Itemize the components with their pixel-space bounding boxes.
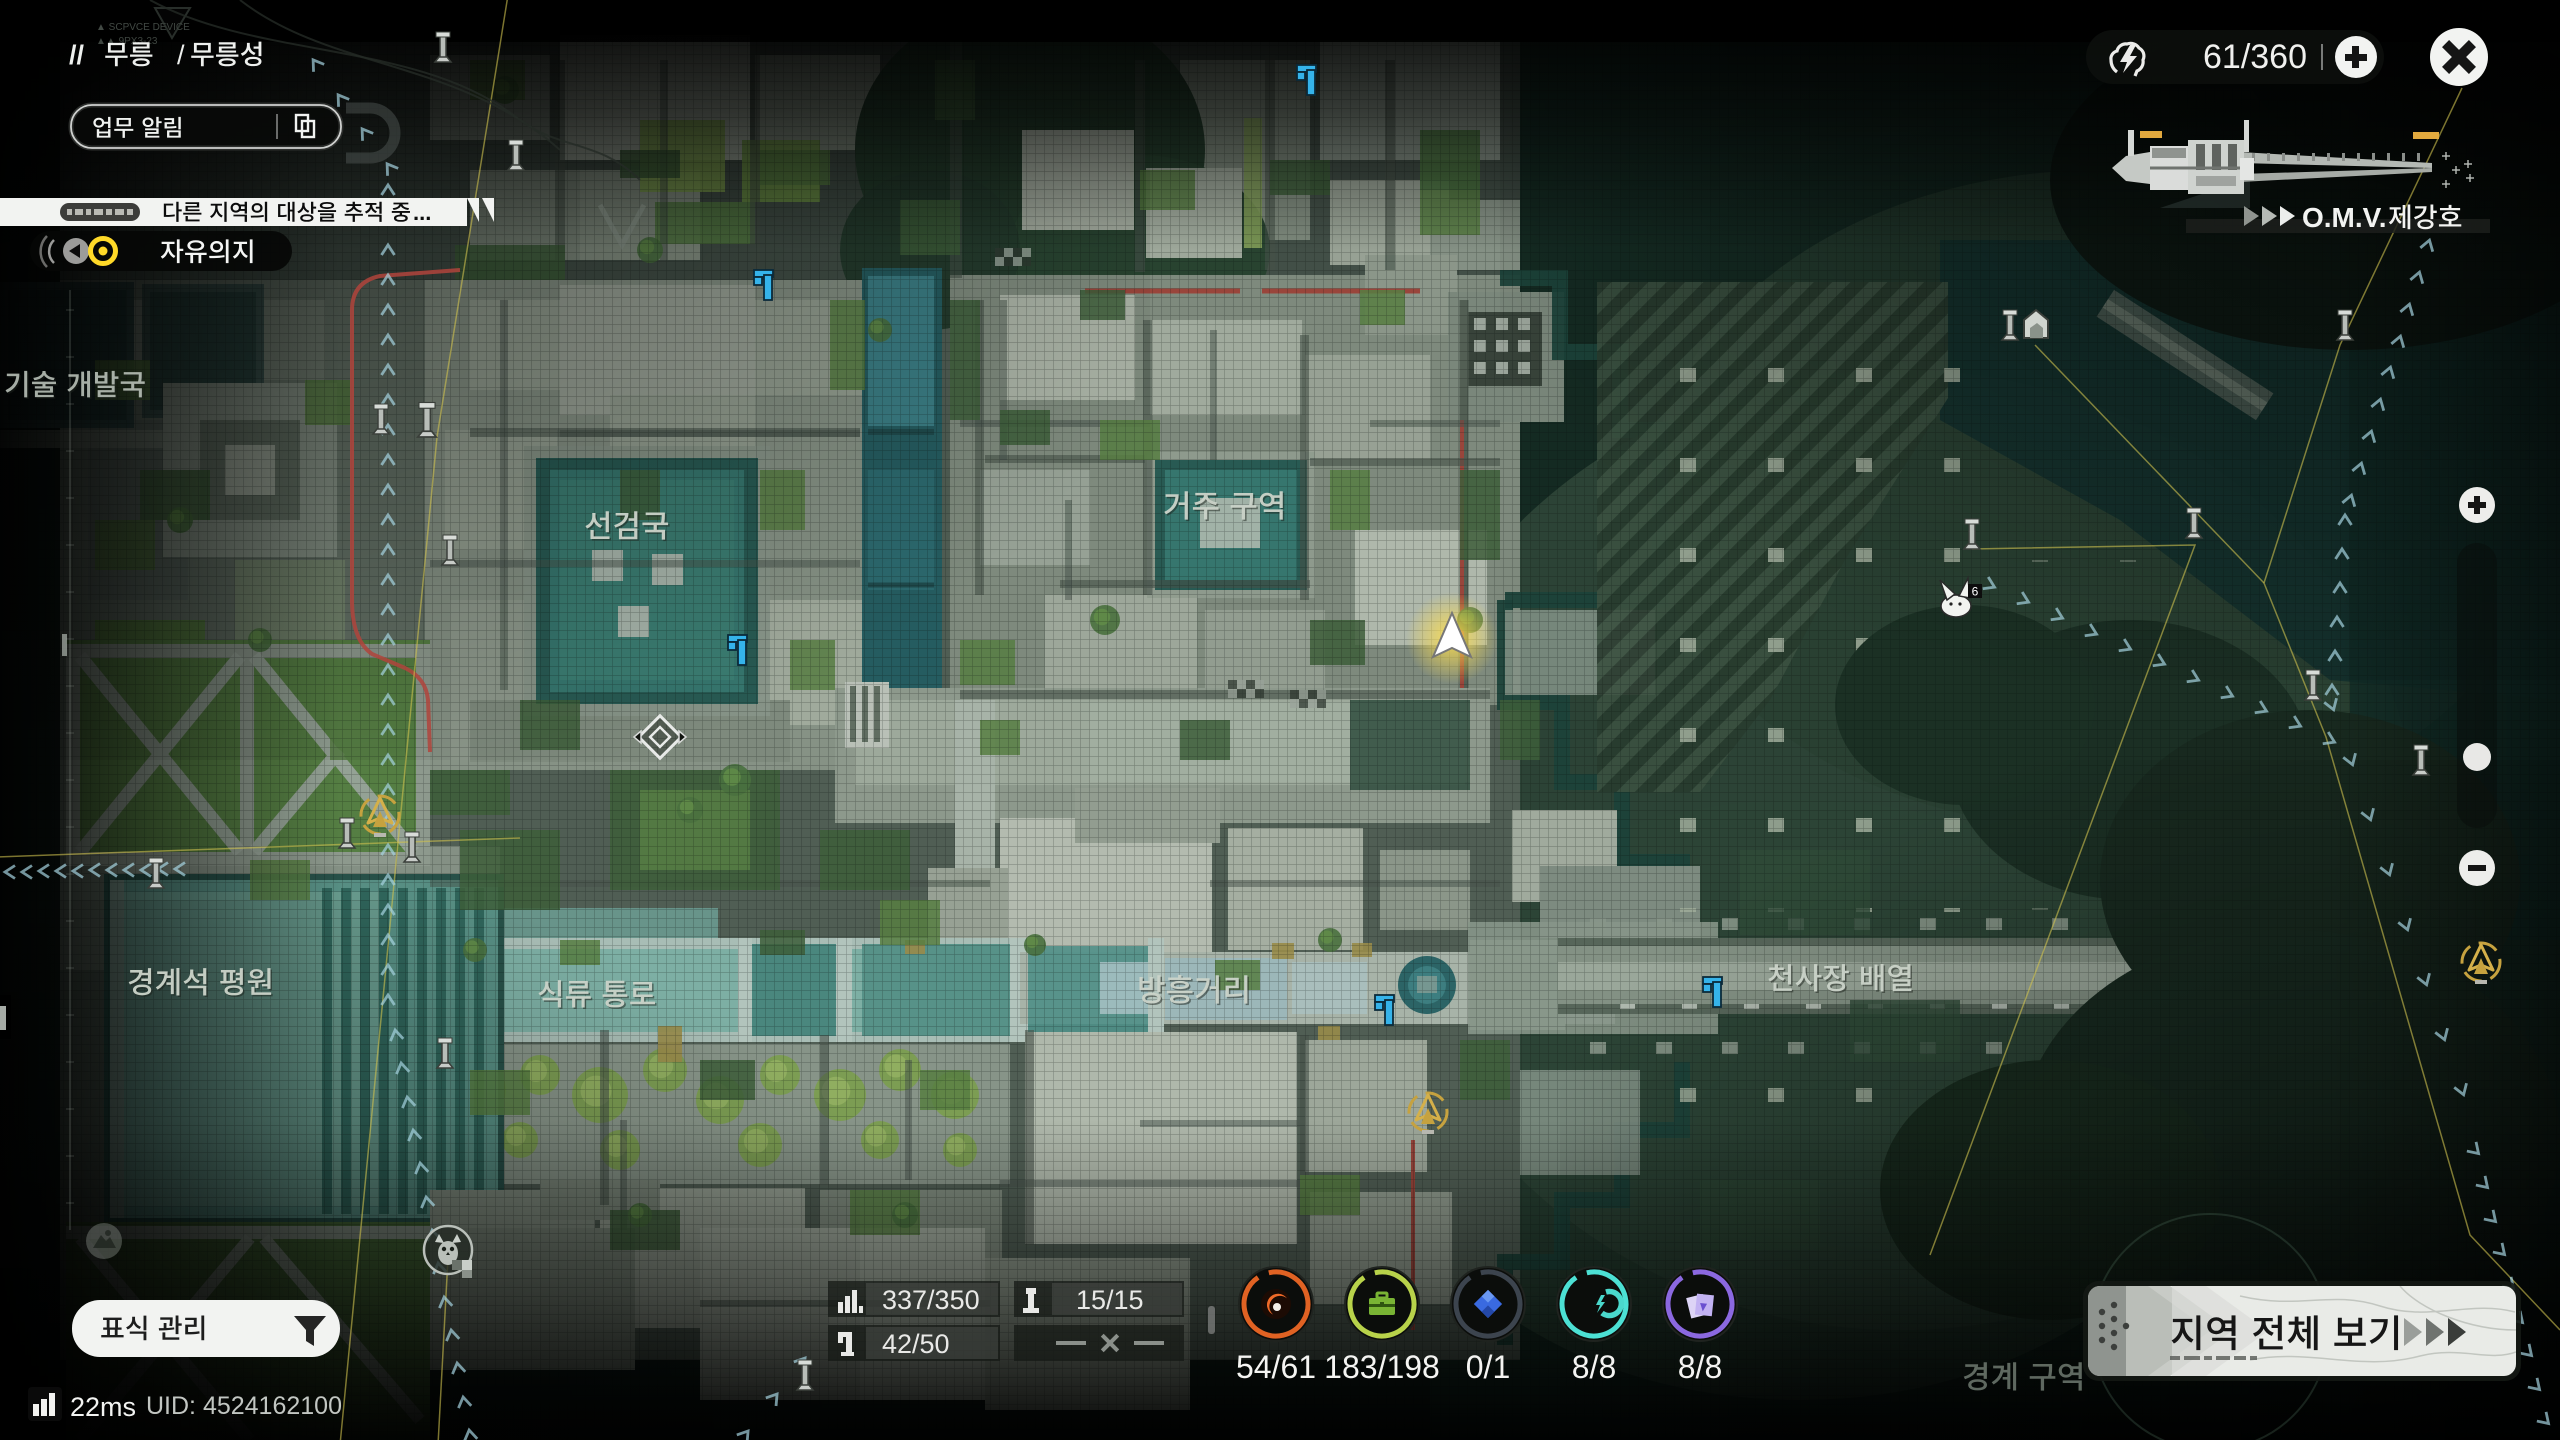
svg-text:42/50: 42/50: [882, 1329, 950, 1359]
svg-text:8/8: 8/8: [1572, 1349, 1616, 1385]
svg-text:8/8: 8/8: [1678, 1349, 1722, 1385]
svg-text:337/350: 337/350: [882, 1285, 980, 1315]
svg-text:183/198: 183/198: [1324, 1349, 1440, 1385]
svg-text:UID: 4524162100: UID: 4524162100: [146, 1392, 342, 1420]
svg-text:/: /: [177, 40, 185, 70]
svg-text:54/61: 54/61: [1236, 1349, 1316, 1385]
svg-text:6: 6: [1972, 585, 1979, 599]
svg-text:O.M.V.: O.M.V.: [2302, 202, 2387, 233]
svg-text:0/1: 0/1: [1466, 1349, 1510, 1385]
svg-text:22ms: 22ms: [70, 1392, 136, 1422]
svg-text:15/15: 15/15: [1076, 1285, 1144, 1315]
svg-text:61/360: 61/360: [2203, 38, 2307, 76]
svg-text://: //: [69, 40, 85, 70]
svg-text:...: ...: [413, 200, 431, 225]
